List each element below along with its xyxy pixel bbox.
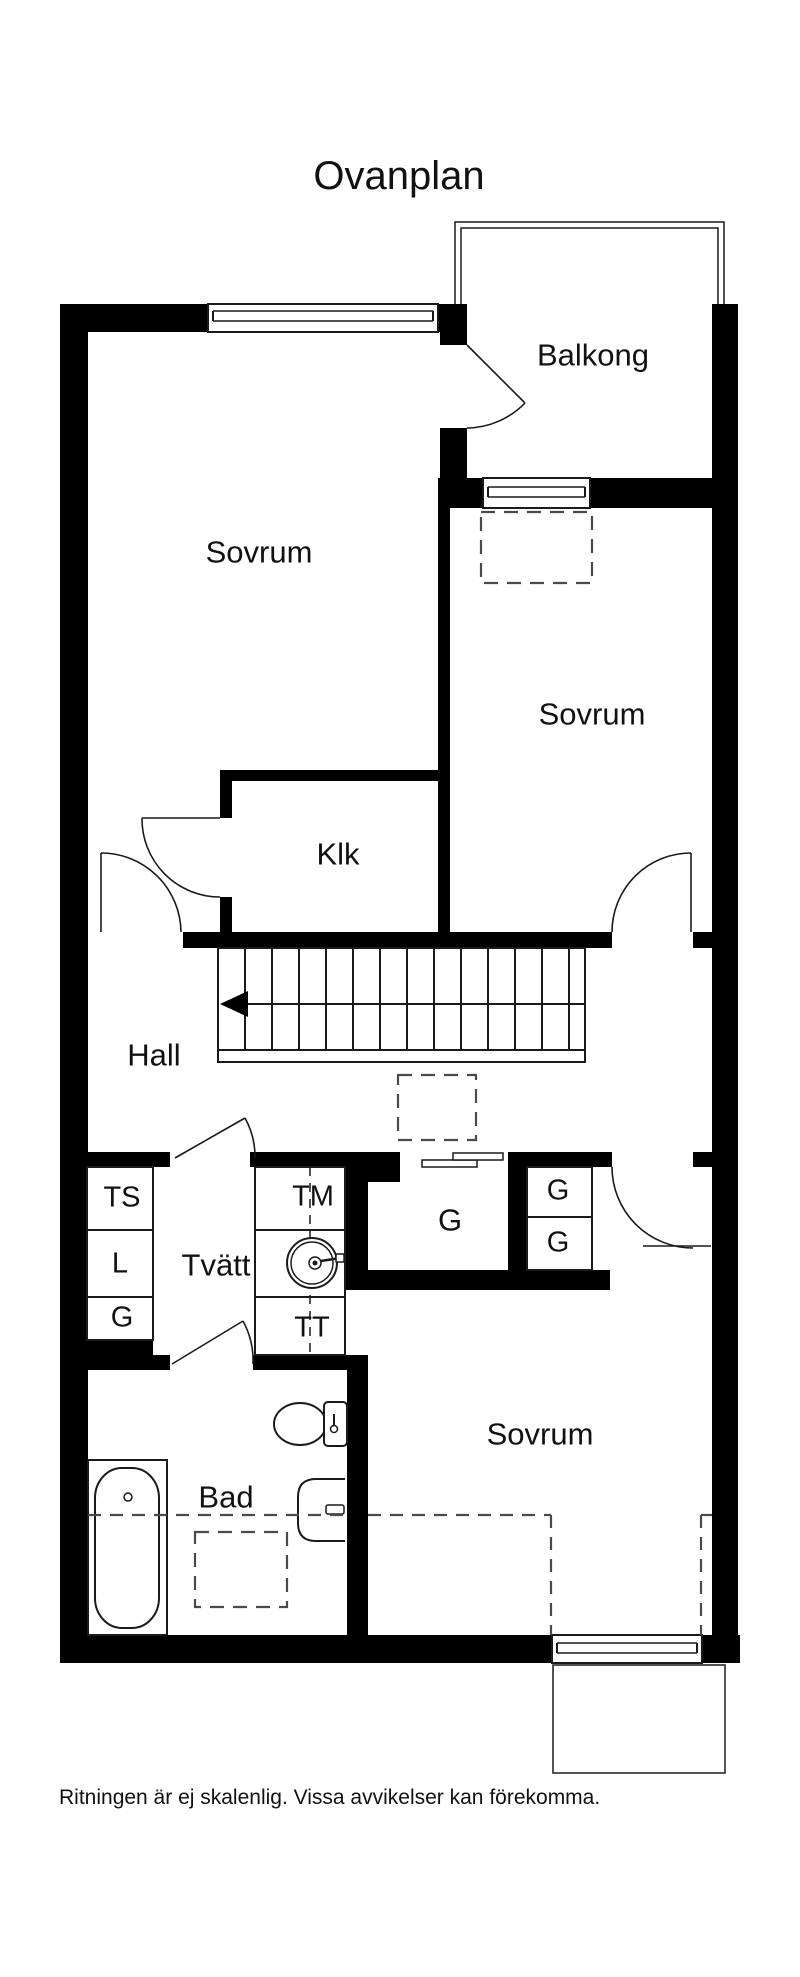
dashed-area-bedroom2 (481, 512, 592, 583)
closet-label-g-right-bottom: G (547, 1229, 570, 1258)
dashed-markers (88, 512, 712, 1635)
dashed-ceiling-height-line (88, 1515, 712, 1635)
wall-hall-row-right-stub (693, 932, 713, 948)
stairs-treads (245, 948, 569, 1050)
wall-g-room-left-jog (368, 1152, 400, 1182)
window-balcony (483, 478, 590, 508)
wall-g-room-right (508, 1167, 527, 1270)
wall-top-left-segment (60, 304, 208, 332)
wall-balcony-floor-right (590, 478, 712, 508)
door-bedroom3 (612, 1167, 711, 1248)
wall-bath-row-right (253, 1355, 368, 1370)
washing-machine-icon (287, 1238, 344, 1288)
closet-label-l: L (112, 1250, 128, 1279)
floor-plan-drawing (0, 0, 800, 1977)
wall-bath-row-stub (60, 1340, 153, 1355)
closet-label-tm: TM (292, 1183, 334, 1212)
wall-bath-bedroom-divider (347, 1370, 368, 1635)
dashed-area-shower (195, 1532, 287, 1607)
wall-balcony-door-stub-top (440, 304, 467, 345)
closet-label-tt: TT (294, 1314, 329, 1343)
page-title: Ovanplan (313, 156, 484, 196)
wall-klk-left-stub-top (220, 770, 232, 818)
wall-klk-left-stub-bottom (220, 897, 232, 932)
dashed-area-hall (398, 1075, 476, 1140)
balcony-railing (455, 222, 724, 304)
room-label-hall: Hall (127, 1040, 180, 1071)
window-bedroom3-bottom (552, 1635, 702, 1663)
room-label-sovrum-1: Sovrum (206, 537, 313, 568)
closet-label-g-left: G (111, 1304, 134, 1333)
wall-bath-row-left (60, 1355, 170, 1370)
door-klk (142, 818, 220, 897)
wall-left (60, 304, 88, 1663)
wall-g-room-top-right (508, 1152, 612, 1167)
disclaimer-text: Ritningen är ej skalenlig. Vissa avvikel… (59, 1787, 600, 1808)
wall-g-room-bottom (345, 1270, 610, 1290)
door-laundry-bath (172, 1321, 253, 1364)
bathtub-icon (88, 1460, 167, 1635)
floor-plan-page: Ovanplan Balkong Sovrum Sovrum Klk Hall … (0, 0, 800, 1977)
door-bedroom1 (101, 853, 181, 932)
wall-bedroom3-door-stub (693, 1152, 713, 1167)
window-bedroom1-top (208, 304, 438, 332)
closet-label-g-room: G (438, 1205, 462, 1236)
door-bedroom2 (612, 853, 691, 932)
room-label-bad: Bad (198, 1482, 253, 1513)
wall-bottom-right-corner (702, 1635, 740, 1663)
wall-g-room-left (345, 1152, 368, 1290)
room-label-balkong: Balkong (537, 340, 649, 371)
room-label-sovrum-2: Sovrum (539, 699, 646, 730)
sliding-door-g-room (422, 1153, 503, 1167)
wall-laundry-row-left (60, 1152, 170, 1167)
wall-right (712, 304, 738, 1663)
wall-klk-top (220, 770, 450, 781)
door-laundry-hall (175, 1118, 255, 1158)
room-label-klk: Klk (316, 839, 359, 870)
stairs-direction-arrow (220, 991, 248, 1017)
room-label-sovrum-3: Sovrum (487, 1419, 594, 1450)
door-balcony (467, 345, 525, 428)
stairs (218, 948, 585, 1062)
wall-hall-row-main (183, 932, 612, 948)
toilet-icon (274, 1402, 347, 1446)
closet-label-g-right-top: G (547, 1177, 570, 1206)
closet-label-ts: TS (103, 1184, 140, 1213)
bathroom-sink-icon (298, 1479, 345, 1541)
patio-below-outline (553, 1665, 725, 1773)
wall-bottom-left-segment (60, 1635, 552, 1663)
wall-bedroom-divider (438, 478, 450, 932)
room-label-tvatt: Tvätt (182, 1250, 251, 1281)
